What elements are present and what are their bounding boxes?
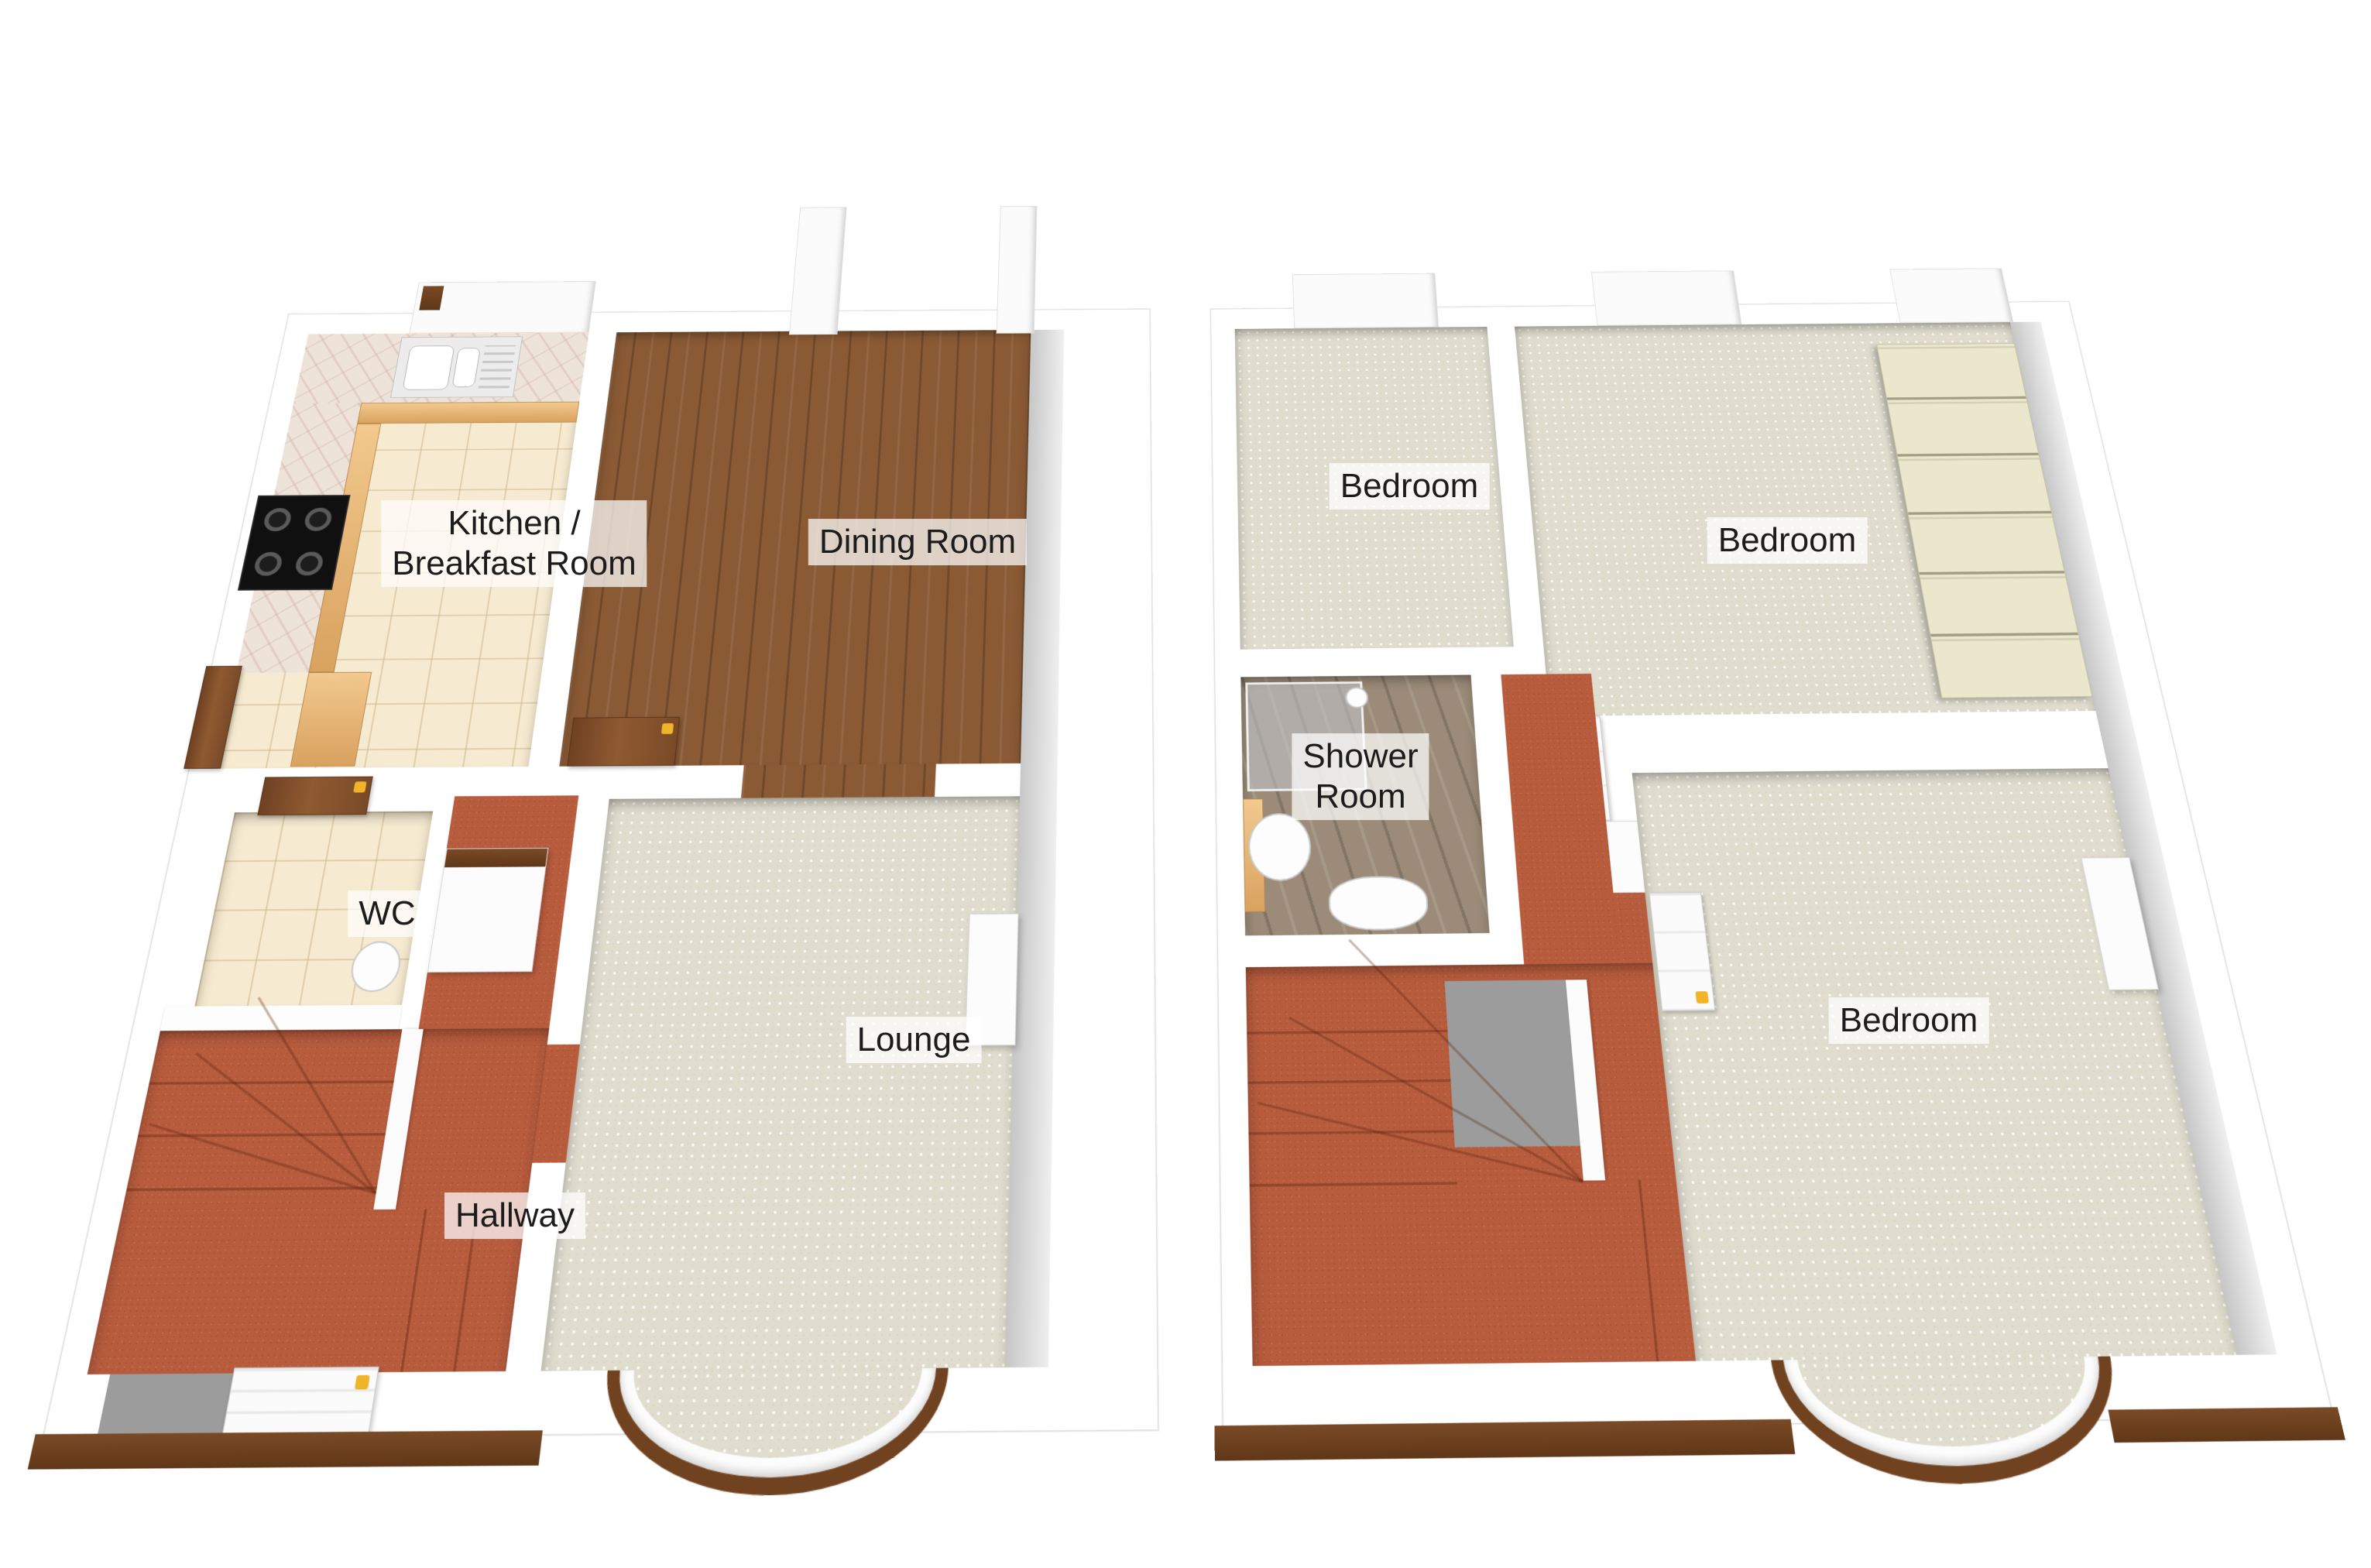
room-label-line: Breakfast Room [392, 544, 636, 584]
labels-layer: Kitchen / Breakfast Room Dining Room WC … [0, 0, 2371, 1568]
room-label-bedroom-1: Bedroom [1330, 463, 1490, 510]
room-label-kitchen: Kitchen / Breakfast Room [381, 500, 647, 587]
room-label-line: Shower [1302, 736, 1418, 777]
room-label-wc: WC [348, 890, 426, 937]
room-label-hallway: Hallway [444, 1192, 585, 1239]
room-label-dining-room: Dining Room [808, 519, 1027, 565]
room-label-bedroom-2: Bedroom [1707, 517, 1868, 564]
floorplan-canvas: Kitchen / Breakfast Room Dining Room WC … [0, 0, 2371, 1568]
room-label-shower-room: Shower Room [1292, 733, 1429, 820]
room-label-bedroom-3: Bedroom [1829, 997, 1989, 1044]
room-label-lounge: Lounge [846, 1017, 982, 1063]
room-label-line: Room [1302, 777, 1418, 817]
room-label-line: Kitchen / [392, 503, 636, 544]
